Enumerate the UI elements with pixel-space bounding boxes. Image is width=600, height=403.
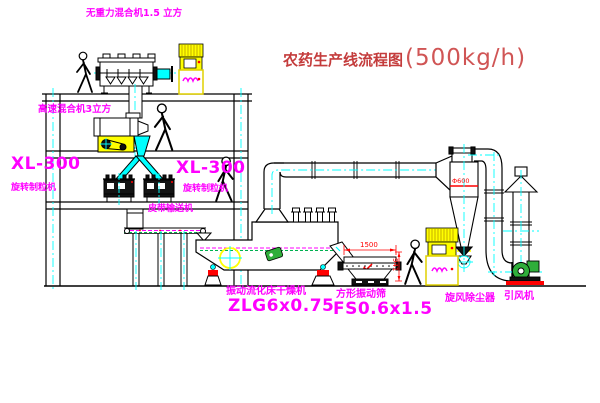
conveyor-columns [133,233,187,286]
label-belt-conveyor: 皮带输送机 [148,205,193,214]
label-granulator-left-model: XL-300 [11,156,80,173]
person-figure-floor2 [155,104,172,150]
dim-sieve-length: 1500 [360,242,378,249]
dim-cyclone-inlet: Φ600 [452,178,470,185]
drawing-title: 农药生产线流程图 (500kg/h) [283,47,526,70]
granulator-1 [103,173,135,205]
high-speed-mixer [94,113,164,180]
indicator-dot [198,61,201,64]
floor-chute [127,209,143,229]
label-gravity-mixer: 无重力混合机1.5 立方 [86,9,182,19]
label-high-speed-mixer: 高速混合机3立方 [38,105,111,115]
control-cabinet-right [426,228,458,285]
label-cyclone: 旋风除尘器 [445,294,495,304]
label-granulator-mid-model: XL-300 [176,160,245,177]
dryer-nozzles [291,208,337,222]
label-fan: 引风机 [504,292,534,302]
label-dryer-model: ZLG6x0.75 [228,298,334,315]
distributor-leg-right [136,156,164,180]
fan-base [506,281,544,285]
dim-sieve-height: 941 [391,258,398,271]
label-sieve-model: FS0.6x1.5 [333,301,433,318]
label-granulator-mid-name: 旋转制粒机 [183,185,228,194]
person-figure-roof [77,52,92,92]
mixer-discharge-funnel [134,136,150,156]
label-granulator-left-name: 旋转制粒机 [11,184,56,193]
cad-flow-diagram: 农药生产线流程图 (500kg/h) 无重力混合机1.5 立方 高速混合机3立方… [0,0,600,403]
person-figure-ground [405,240,422,284]
granulator-2 [143,173,175,205]
exhaust-duct [256,156,462,222]
control-cabinet-top [179,44,203,94]
title-text: 农药生产线流程图 [283,53,403,68]
title-capacity: (500kg/h) [405,47,526,70]
mixer-discharge-pipe [157,69,170,79]
